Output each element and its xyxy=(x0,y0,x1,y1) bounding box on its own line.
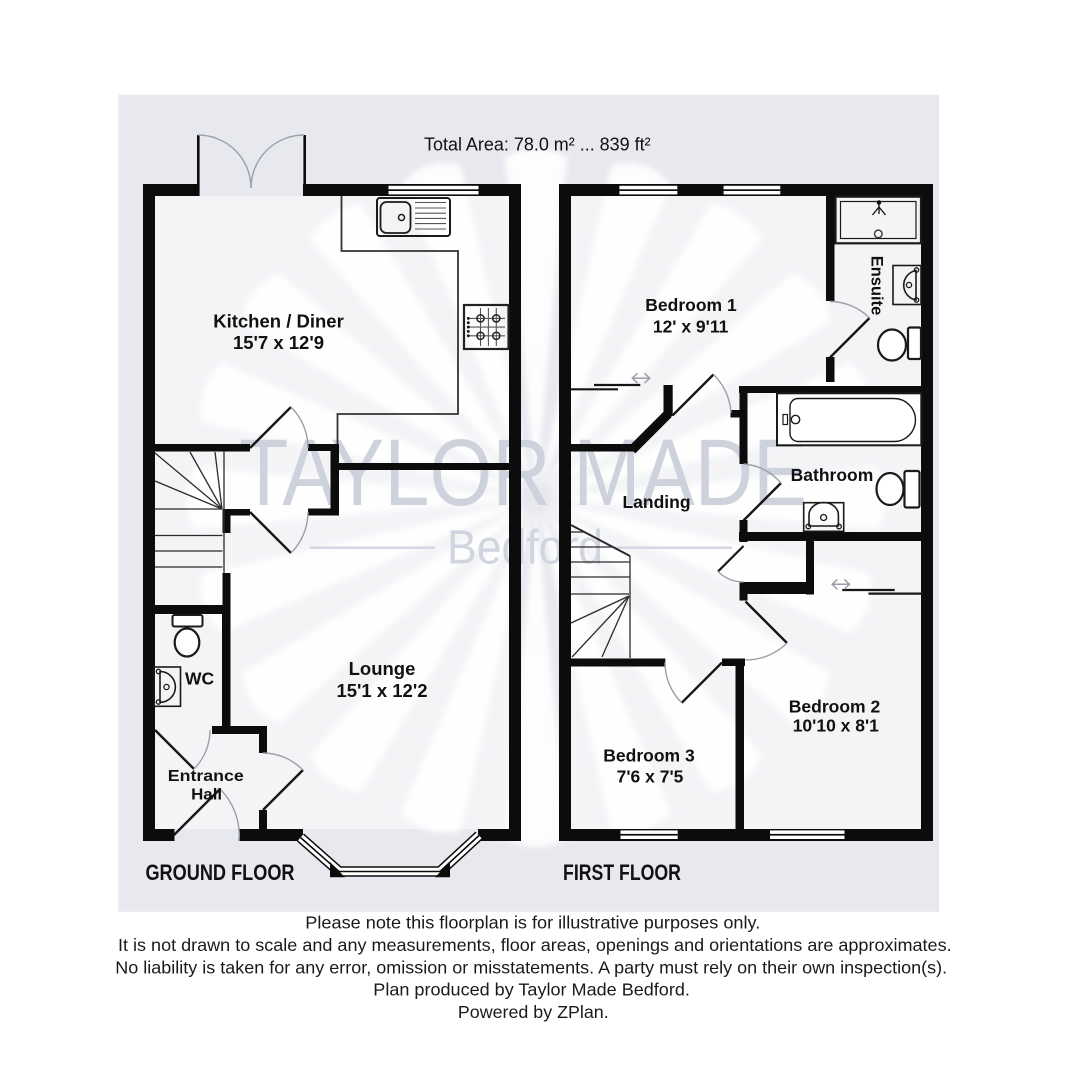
svg-text:12' x 9'11: 12' x 9'11 xyxy=(653,316,729,336)
svg-text:15'7 x 12'9: 15'7 x 12'9 xyxy=(233,332,324,353)
svg-text:It is not drawn to scale and a: It is not drawn to scale and any measure… xyxy=(118,935,952,955)
svg-text:GROUND FLOOR: GROUND FLOOR xyxy=(145,860,294,885)
svg-text:Ensuite: Ensuite xyxy=(868,256,886,316)
svg-text:Kitchen / Diner: Kitchen / Diner xyxy=(213,311,344,332)
svg-text:Entrance: Entrance xyxy=(168,768,244,785)
svg-text:Bedroom 1: Bedroom 1 xyxy=(645,295,737,315)
svg-text:Please note this floorplan is: Please note this floorplan is for illust… xyxy=(305,912,760,932)
svg-text:Plan produced by Taylor Made B: Plan produced by Taylor Made Bedford. xyxy=(373,980,690,1000)
svg-text:Total Area: 78.0 m² ... 839 ft: Total Area: 78.0 m² ... 839 ft² xyxy=(424,133,651,154)
svg-text:Bathroom: Bathroom xyxy=(791,465,874,485)
svg-text:Landing: Landing xyxy=(622,492,690,512)
svg-text:Lounge: Lounge xyxy=(349,658,416,679)
svg-text:No liability is taken for any: No liability is taken for any error, omi… xyxy=(115,957,947,977)
svg-text:10'10 x 8'1: 10'10 x 8'1 xyxy=(793,716,879,736)
svg-text:15'1 x 12'2: 15'1 x 12'2 xyxy=(336,680,427,701)
svg-text:7'6 x 7'5: 7'6 x 7'5 xyxy=(617,767,684,787)
svg-text:Bedroom 2: Bedroom 2 xyxy=(789,696,881,716)
svg-text:Powered by ZPlan.: Powered by ZPlan. xyxy=(458,1002,609,1022)
svg-text:WC: WC xyxy=(185,668,215,688)
svg-text:Hall: Hall xyxy=(191,787,222,804)
svg-text:Bedroom 3: Bedroom 3 xyxy=(603,745,695,765)
svg-text:FIRST FLOOR: FIRST FLOOR xyxy=(563,860,681,885)
